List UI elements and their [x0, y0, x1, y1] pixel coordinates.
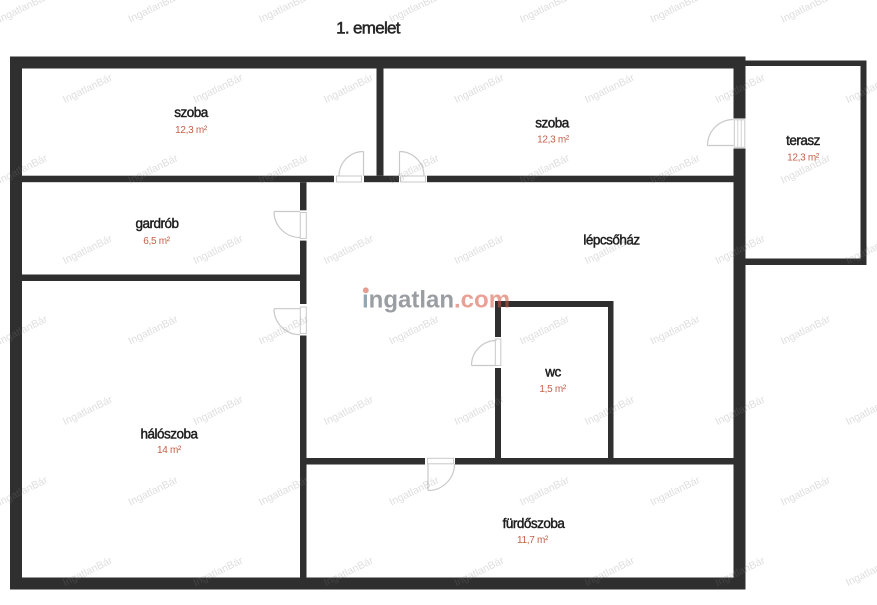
svg-text:12,3 m²: 12,3 m² [175, 125, 208, 136]
svg-text:14 m²: 14 m² [157, 445, 182, 456]
svg-text:hálószoba: hálószoba [140, 427, 198, 442]
svg-text:ıngatlan.com: ıngatlan.com [362, 287, 510, 314]
svg-text:szoba: szoba [174, 105, 209, 120]
svg-text:1,5 m²: 1,5 m² [539, 384, 567, 395]
svg-text:wc: wc [544, 365, 561, 380]
svg-text:szoba: szoba [535, 116, 570, 131]
svg-text:11,7 m²: 11,7 m² [517, 535, 549, 546]
svg-text:terasz: terasz [786, 133, 821, 148]
svg-text:fürdőszoba: fürdőszoba [503, 516, 566, 531]
svg-text:12,3 m²: 12,3 m² [537, 135, 570, 146]
svg-text:6,5 m²: 6,5 m² [143, 236, 171, 247]
svg-text:gardrób: gardrób [135, 216, 178, 231]
